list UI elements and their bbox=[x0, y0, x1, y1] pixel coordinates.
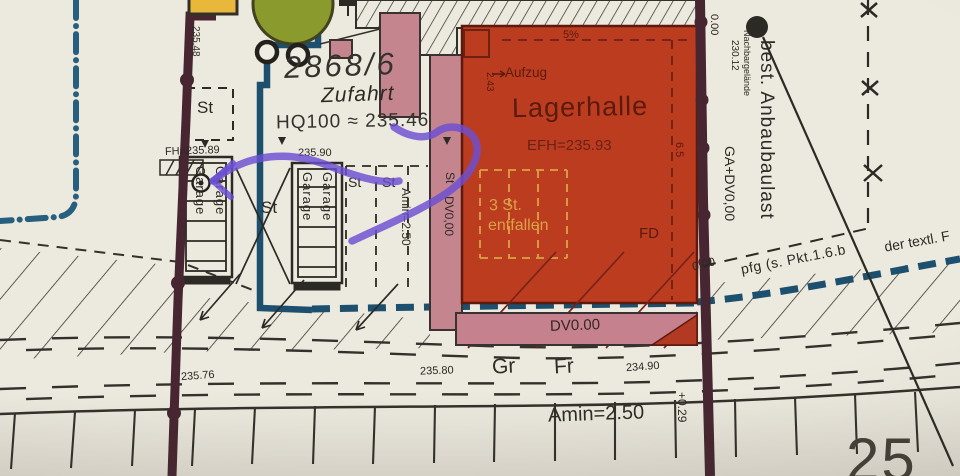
aisle-dim: Amin=2.50 bbox=[399, 188, 412, 246]
gr-label: Gr bbox=[491, 355, 515, 378]
flood-boundary-line bbox=[0, 0, 76, 221]
site-plan: 2868/6 Zufahrt HQ100 ≈ 235.46 Lagerhalle… bbox=[0, 0, 960, 476]
zero-level-top: 0.00 bbox=[707, 14, 719, 35]
site-plan-drawing bbox=[0, 0, 960, 476]
fr-label: Fr bbox=[553, 355, 574, 378]
building-inner-dim: 6.5 bbox=[672, 142, 684, 157]
new-building bbox=[462, 26, 697, 348]
street-aisle-dim: Amin=2.50 bbox=[548, 402, 645, 426]
canopy-level-street: DV0.00 bbox=[550, 317, 601, 334]
elevator-label: Aufzug bbox=[505, 66, 547, 80]
level-235-80: 235.80 bbox=[420, 365, 454, 378]
ga-dv-label: GA+DV0,00 bbox=[722, 146, 737, 221]
garage-label-4: Garage bbox=[320, 172, 334, 221]
flat-roof-label: FD bbox=[639, 226, 659, 242]
stall-label-2: St bbox=[382, 175, 395, 190]
top-tick bbox=[339, 0, 357, 16]
omitted-stalls-line1: 3 St. bbox=[489, 198, 522, 215]
neighbor-site-label: Nachbargelände bbox=[742, 30, 751, 96]
level-235-76: 235.76 bbox=[181, 370, 215, 384]
elevator-dim: 2.43 bbox=[484, 72, 495, 91]
canopy-level-vertical: DV0,00 bbox=[442, 196, 455, 236]
building-floor-level: EFH=235.93 bbox=[527, 138, 612, 154]
neighbor-site-level: 230.12 bbox=[729, 40, 740, 71]
garage-label-3: Garage bbox=[300, 172, 314, 221]
stall-label-top: St bbox=[197, 99, 213, 117]
garage-label-1: Garage bbox=[193, 166, 207, 215]
hq100-level: HQ100 ≈ 235.46 bbox=[276, 111, 430, 134]
level-234-90: 234.90 bbox=[626, 361, 660, 375]
level-235-90: 235.90 bbox=[298, 148, 332, 160]
fh-level: FH=235.89 bbox=[165, 145, 220, 158]
slope-label: 5% bbox=[563, 30, 579, 42]
baulast-label: best. Anbaubaulast bbox=[756, 40, 776, 220]
stall-label-mid: St bbox=[261, 199, 277, 217]
garage-label-2: Garage bbox=[213, 166, 227, 215]
sidewalk-comb bbox=[0, 387, 960, 469]
parcel-number: 2868/6 bbox=[283, 48, 397, 84]
building-name: Lagerhalle bbox=[512, 92, 649, 123]
zufahrt-label: Zufahrt bbox=[321, 83, 395, 108]
offset-029: +0.29 bbox=[675, 392, 688, 422]
level-235-48: 235.48 bbox=[190, 26, 201, 57]
stall-label-1: St bbox=[348, 175, 361, 190]
omitted-stalls-line2: entfallen bbox=[488, 218, 549, 235]
partial-parcel-number: 25 bbox=[846, 428, 917, 476]
stall-label-canopy: St bbox=[443, 172, 456, 183]
yellow-highlight bbox=[189, 0, 237, 14]
